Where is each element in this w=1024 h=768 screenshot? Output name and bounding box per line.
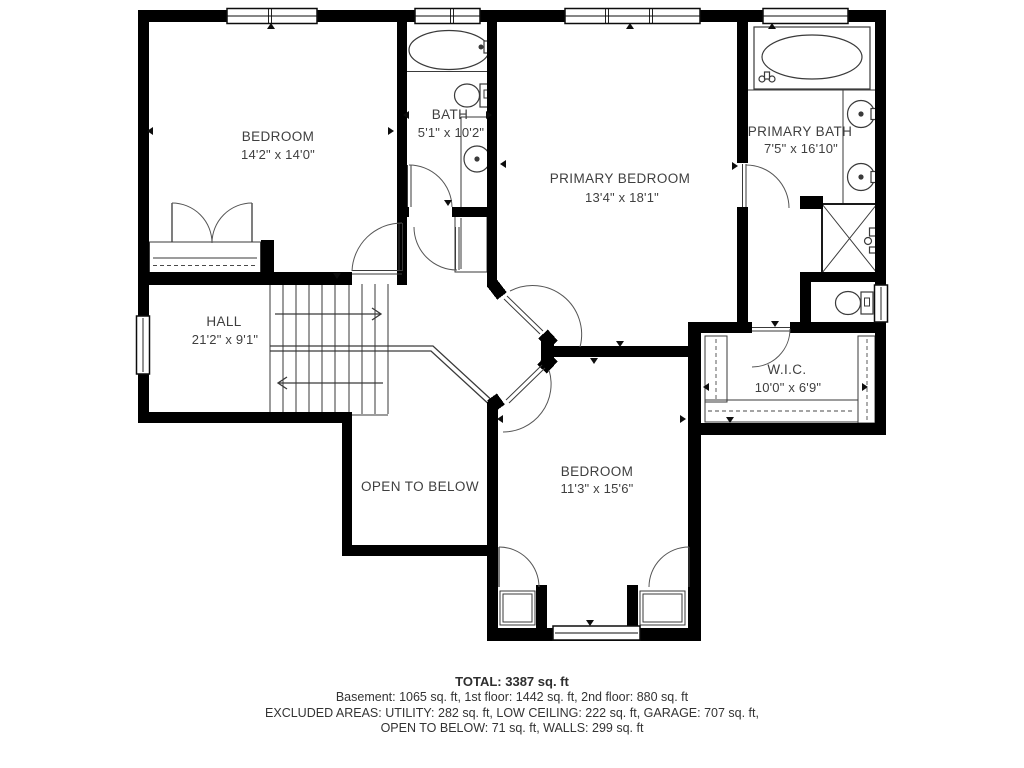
hall-dims: 21'2" x 9'1" [192, 332, 259, 347]
bedroom2-dims: 11'3" x 15'6" [561, 481, 634, 496]
window [875, 285, 888, 322]
summary-floors: Basement: 1065 sq. ft, 1st floor: 1442 s… [336, 690, 689, 704]
primary-toilet [836, 292, 874, 315]
primary-bathtub [748, 27, 876, 90]
window [137, 316, 150, 374]
window [227, 9, 317, 24]
primary-bedroom-dims: 13'4" x 18'1" [585, 190, 659, 205]
summary-excluded: EXCLUDED AREAS: UTILITY: 282 sq. ft, LOW… [265, 706, 759, 720]
bedroom2-label: BEDROOM [561, 464, 634, 479]
floor-plan-page: BEDROOM 14'2" x 14'0" BATH 5'1" x 10'2" … [0, 0, 1024, 768]
primary-bedroom-label: PRIMARY BEDROOM [550, 171, 691, 186]
hall-label: HALL [206, 314, 241, 329]
bath-dims: 5'1" x 10'2" [418, 125, 485, 140]
primary-bath-dims: 7'5" x 16'10" [764, 141, 838, 156]
wic-dims: 10'0" x 6'9" [755, 380, 822, 395]
primary-bath-label: PRIMARY BATH [748, 124, 853, 139]
wic-label: W.I.C. [767, 362, 806, 377]
summary-excluded2: OPEN TO BELOW: 71 sq. ft, WALLS: 299 sq.… [381, 721, 644, 735]
bedroom1-label: BEDROOM [242, 129, 315, 144]
bath-label: BATH [432, 107, 469, 122]
shower [822, 204, 877, 273]
summary-total: TOTAL: 3387 sq. ft [455, 674, 569, 689]
window [763, 9, 848, 24]
window [553, 626, 640, 640]
window [565, 9, 700, 24]
bedroom1-dims: 14'2" x 14'0" [241, 147, 315, 162]
open-to-below-label: OPEN TO BELOW [361, 479, 479, 494]
window [415, 9, 480, 24]
floor-plan: BEDROOM 14'2" x 14'0" BATH 5'1" x 10'2" … [0, 0, 1024, 768]
